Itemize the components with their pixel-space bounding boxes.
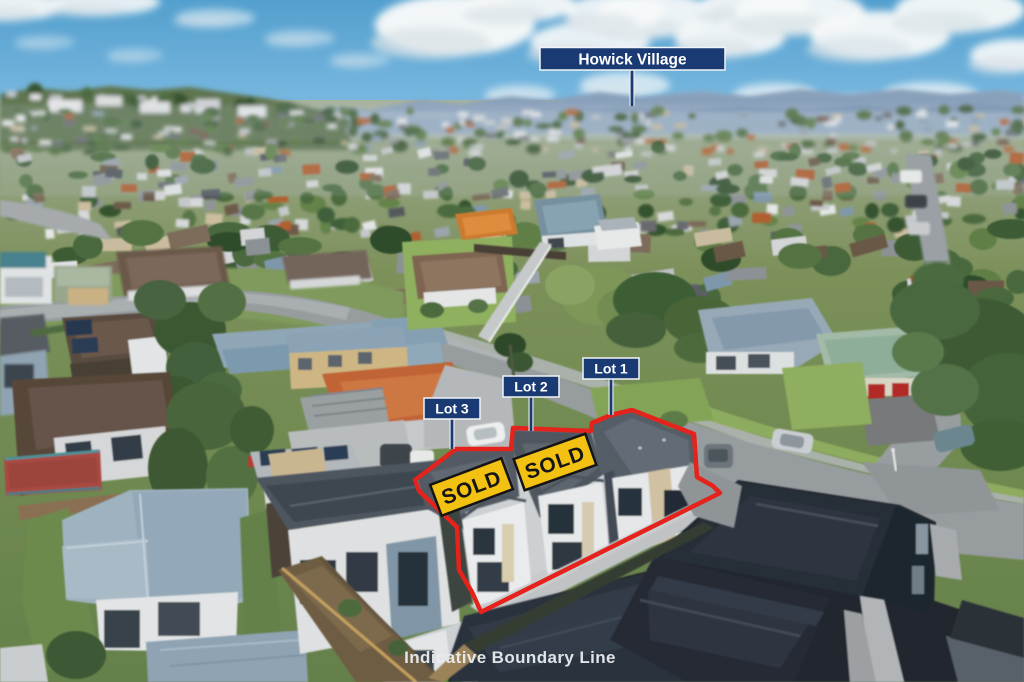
svg-text:Lot 2: Lot 2 [514, 379, 548, 395]
svg-text:Howick Village: Howick Village [578, 51, 687, 68]
svg-text:Indicative Boundary Line: Indicative Boundary Line [404, 648, 616, 667]
svg-text:Lot 3: Lot 3 [435, 401, 469, 417]
svg-text:Lot 1: Lot 1 [594, 361, 628, 377]
